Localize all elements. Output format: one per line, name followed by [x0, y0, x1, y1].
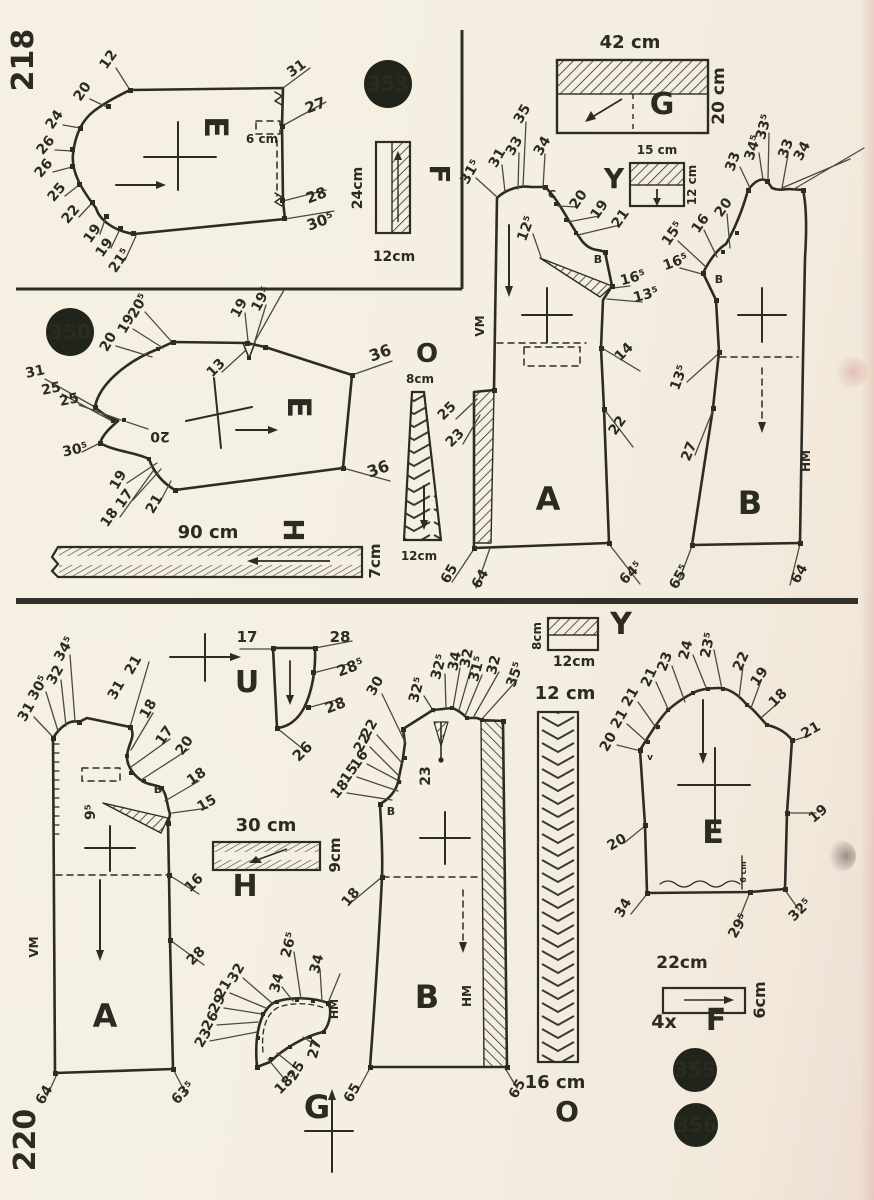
measure-label: 35 [511, 102, 535, 127]
leader-lines [678, 133, 864, 585]
dimension-label: 24cm [350, 167, 366, 209]
dimension-label: 30 cm [236, 815, 297, 836]
piece-e-bottom [617, 650, 816, 922]
measure-label: 14 [612, 339, 637, 364]
scan-artifact-bottom [822, 840, 856, 872]
cross-mark [738, 288, 786, 342]
piece-letter: A [93, 997, 118, 1035]
measure-label: 28 [303, 183, 329, 207]
measure-label: 26⁵ [278, 931, 300, 960]
piece-letter: B [415, 978, 439, 1016]
measure-label: 26 [34, 133, 59, 158]
strip-o-bottom [538, 712, 578, 1062]
grain-arrow-head [268, 426, 278, 434]
strip-h-middle [52, 547, 362, 577]
measure-label: 25 [58, 390, 80, 410]
measure-label: 16⁵ [661, 250, 691, 274]
seam-label: HM [460, 985, 474, 1007]
quantity-label: 4x [651, 1011, 676, 1033]
measure-label: 32⁵ [785, 895, 814, 924]
seam-label: VM [27, 936, 41, 957]
measure-label: 18 [184, 765, 209, 789]
measure-label: 17 [237, 628, 258, 646]
seam-label: HM [799, 450, 813, 472]
piece-letter: A [536, 480, 561, 518]
scan-artifact-top [832, 356, 868, 388]
measure-label: 21 [799, 719, 824, 743]
dimension-label: 12cm [373, 249, 415, 265]
measure-label: 28⁵ [334, 654, 366, 680]
measure-label: 28 [184, 944, 209, 969]
measure-label: 64⁵ [616, 558, 645, 587]
facing-hatch [474, 390, 494, 543]
piece-letter: F [706, 1003, 727, 1038]
measure-label: 27 [678, 439, 700, 463]
measure-label: 21 [122, 653, 146, 678]
dimension-label: 22cm [656, 953, 707, 973]
measure-label: 22 [730, 649, 753, 673]
style-badge-number: 353 [367, 72, 409, 96]
notch-letter: B [594, 253, 602, 266]
scan-edge-tint [860, 0, 874, 1200]
measure-label: 36 [364, 456, 391, 481]
measure-label: 18 [98, 505, 122, 530]
dart-hatch [434, 722, 448, 746]
measure-label: 64 [788, 561, 812, 586]
measure-label: 30⁵ [304, 208, 336, 234]
dimension-label: 12 cm [685, 165, 699, 206]
measure-label: 31 [105, 678, 129, 703]
piece-a-bottom [34, 655, 208, 1096]
measure-label: 9⁵ [83, 804, 99, 820]
measure-label: 16 [182, 871, 207, 896]
measure-label: 16⁵ [619, 267, 648, 289]
measure-label: 17 [153, 723, 177, 748]
measure-label: 27 [302, 93, 328, 117]
measure-label: 22 [59, 202, 84, 227]
hip-dashes [720, 357, 798, 424]
dimension-label: 12 cm [535, 683, 596, 704]
piece-letter: O [555, 1095, 579, 1128]
piece-e-middle [45, 290, 392, 517]
measure-label: 65⁵ [666, 562, 693, 592]
waist-dashes [383, 877, 478, 944]
measure-label: 20 [173, 733, 197, 758]
notch-letter: C [548, 188, 556, 201]
measure-label: 28 [330, 628, 351, 646]
seam-label: VM [473, 315, 487, 336]
measure-label: 20 [567, 187, 591, 212]
measure-label: 31 [284, 57, 309, 81]
pattern-diagram-canvas: 353350355356 21822012202426262522191921⁵… [0, 0, 874, 1200]
grain-arrow-head [505, 286, 513, 297]
piece-letter: H [232, 869, 257, 904]
dimension-label: 90 cm [178, 522, 239, 543]
measure-label: 13⁵ [632, 284, 661, 306]
measure-label: 19 [748, 664, 772, 689]
page-number-top: 218 [6, 29, 41, 92]
measure-label: 24 [43, 107, 67, 132]
piece-g-top [557, 60, 708, 133]
piece-letter: Y [603, 162, 625, 195]
measure-label: 26 [32, 156, 57, 181]
style-badge-number: 350 [49, 320, 91, 344]
cross-arrow-head [230, 653, 241, 661]
piece-letter: E [197, 116, 235, 138]
dart-hatch [103, 803, 168, 833]
measure-label: 24 [676, 638, 697, 661]
strip-h-bottom [213, 842, 320, 870]
grain-arrow-head [96, 950, 104, 961]
dimension-label: 42 cm [600, 32, 661, 53]
measure-label: 20 [597, 729, 621, 754]
measure-label: 35⁵ [503, 660, 527, 690]
measure-label: 15 [195, 792, 220, 816]
cross-mark [170, 634, 230, 681]
cross-mark [85, 826, 135, 871]
style-badge-number: 355 [674, 1058, 716, 1082]
dimension-label: 16 cm [525, 1072, 586, 1093]
measure-label: 20 [97, 329, 121, 354]
notch-letter: B [715, 273, 723, 286]
measure-label: 32⁵ [406, 676, 428, 705]
elastic-wave [660, 881, 740, 887]
piece-letter: B [738, 484, 762, 522]
piece-letter: E [280, 396, 318, 418]
measure-label: 26 [289, 738, 316, 765]
measure-label: 19 [806, 802, 831, 827]
measure-label: 63⁵ [168, 1078, 197, 1107]
measure-label: 23 [443, 426, 468, 451]
piece-b-top [678, 133, 864, 585]
measure-label: 28 [322, 693, 348, 717]
notch-letter: B [387, 805, 395, 818]
measure-label: 31 [15, 700, 39, 725]
zigzag-marks [275, 92, 282, 206]
dimension-label: 6cm [750, 981, 769, 1018]
measure-label: 34⁵ [51, 634, 78, 664]
grain-arrow-head [758, 422, 766, 433]
measure-label: 19 [588, 197, 612, 222]
measure-label: 32 [484, 653, 504, 676]
dimension-label: 7cm [366, 544, 384, 579]
grain-arrow-head [459, 942, 467, 953]
piece-y-bottom [548, 618, 598, 650]
measure-label: 30⁵ [61, 440, 89, 461]
measure-label: 20 [71, 79, 95, 104]
measure-label: 29⁵ [725, 911, 752, 941]
measure-label: 20 [150, 428, 170, 444]
piece-f-top [376, 142, 410, 233]
dimension-label: 12cm [401, 549, 437, 563]
piece-u-bottom [170, 634, 352, 749]
measure-label: 25 [45, 180, 70, 205]
piece-f-bottom [663, 988, 745, 1013]
piece-letter: U [235, 665, 259, 700]
band-hatch [481, 721, 507, 1067]
cross-mark [522, 288, 572, 342]
piece-letter: G [304, 1088, 330, 1126]
measure-label: 13 [204, 356, 229, 381]
dimension-label: 15 cm [637, 143, 678, 157]
measure-label: 65 [438, 562, 462, 587]
dimension-label: 6 cm [246, 132, 278, 146]
pocket-dashes [497, 343, 586, 366]
measure-label: 19 [228, 296, 251, 321]
measure-label: 18 [137, 697, 161, 722]
measure-label: 33⁵ [753, 113, 775, 142]
measure-label: 23 [418, 766, 434, 785]
piece-letter: G [650, 87, 675, 122]
page-number-bottom: 220 [8, 1109, 43, 1172]
measure-label: 34 [307, 952, 328, 975]
measure-label: 64 [33, 1082, 57, 1107]
measure-label: 18 [766, 686, 791, 711]
measure-label: 20 [712, 195, 736, 220]
measure-label: 13⁵ [667, 363, 691, 393]
measure-label: 21 [619, 685, 643, 710]
dimension-label: 6 cm [739, 861, 748, 882]
piece-y-top [630, 163, 684, 206]
dimension-label: 12cm [553, 654, 595, 670]
piece-letter: E [702, 813, 724, 851]
pattern-sheet-page: 353350355356 21822012202426262522191921⁵… [0, 0, 874, 1200]
measure-label: 34 [612, 895, 636, 920]
grain-arrow-head [699, 753, 707, 764]
measure-label: 25 [435, 399, 460, 424]
measure-label: 31 [24, 362, 46, 382]
piece-letter: F [423, 164, 456, 183]
measure-label: 21 [608, 707, 632, 732]
dimension-label: 9cm [326, 838, 344, 873]
dimension-label: 8cm [530, 622, 544, 650]
measure-label: 12 [97, 47, 121, 72]
grain-arrow-head [156, 181, 166, 189]
seam-label: HM [328, 999, 341, 1019]
dimension-label: 8cm [406, 372, 434, 386]
style-badge-number: 356 [675, 1113, 717, 1137]
measure-label: 64 [469, 566, 493, 591]
cross-mark [420, 812, 470, 864]
piece-letter: H [277, 518, 310, 541]
notch-letter: B [154, 783, 162, 796]
measure-label: 18 [339, 885, 364, 910]
piece-letter: O [416, 339, 438, 369]
measure-label: 34 [531, 133, 555, 158]
dimension-label: 20 cm [709, 67, 729, 124]
measure-label: 16 [689, 211, 713, 236]
measure-label: 20 [605, 831, 630, 855]
cross-mark [186, 378, 252, 448]
notch-letter: v [647, 753, 653, 763]
piece-letter: Y [609, 607, 633, 642]
measure-label: 30 [364, 673, 388, 698]
